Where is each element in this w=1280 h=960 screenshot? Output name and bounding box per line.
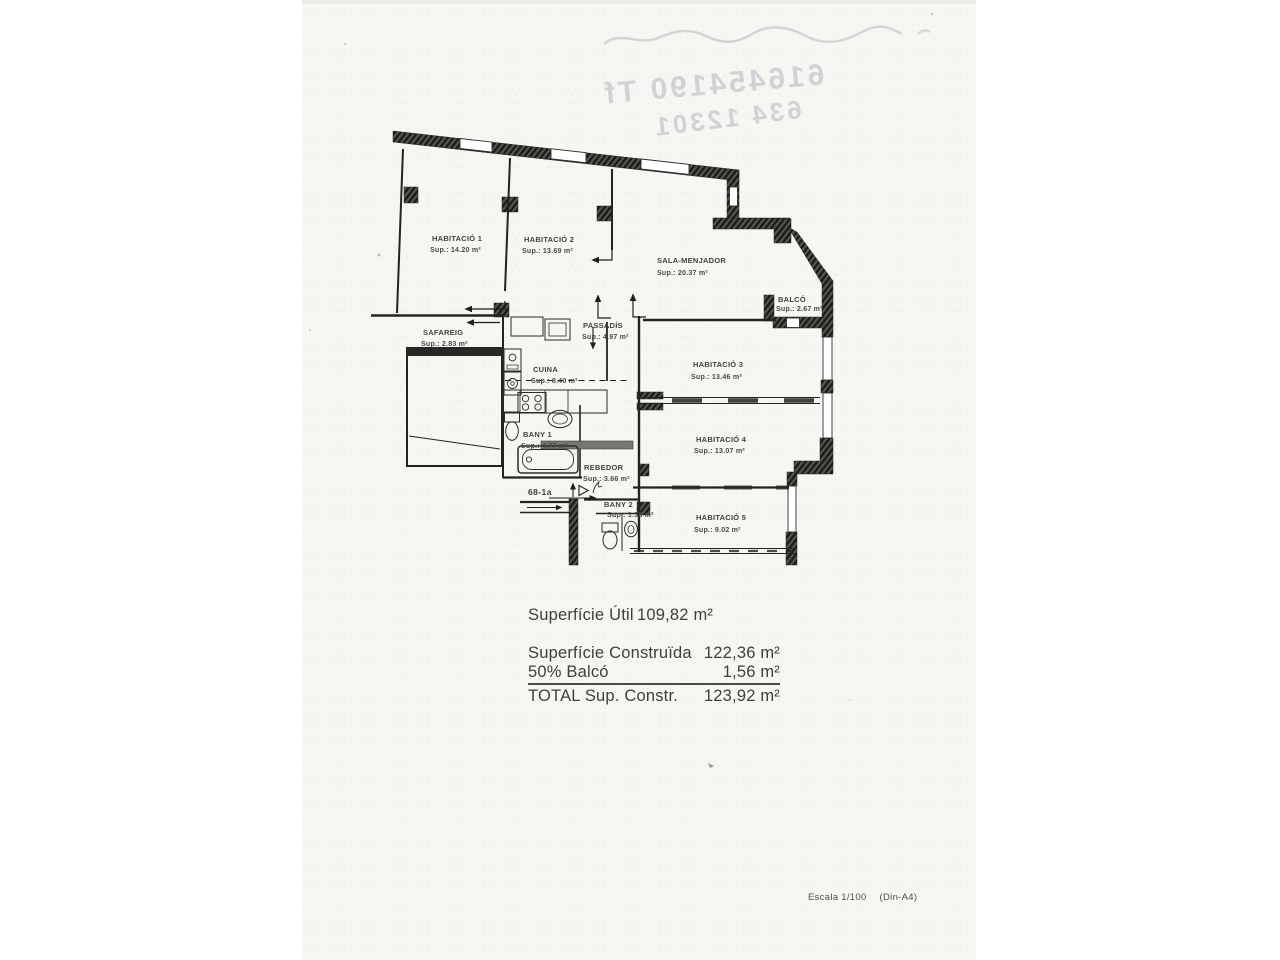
svg-text:HABITACIÓ 4: HABITACIÓ 4 [696, 435, 747, 444]
svg-text:HABITACIÓ 2: HABITACIÓ 2 [524, 235, 574, 244]
patio-diagonal [409, 436, 500, 449]
svg-text:REBEDOR: REBEDOR [584, 463, 624, 472]
summary-value: 123,92 m² [704, 687, 780, 705]
summary-value: 1,56 m² [723, 663, 780, 681]
wall-pillar [404, 187, 418, 203]
entrance-door-label: 68-1a [528, 482, 602, 497]
summary-row-construida: Superfície Construïda 122,36 m² [528, 644, 780, 662]
window [730, 187, 738, 206]
entrance-number: 68-1a [528, 487, 552, 497]
summary-label: Superfície Construïda [528, 644, 692, 662]
svg-text:CUINA: CUINA [533, 365, 558, 374]
svg-text:BANY 1: BANY 1 [523, 430, 552, 439]
bidet-icon [625, 521, 638, 537]
scanned-document-viewer: 616454190 Tf 634 12301 [0, 0, 1280, 960]
window [641, 159, 689, 174]
door-swing-arrow [593, 243, 612, 260]
summary-row-balco: 50% Balcó 1,56 m² [528, 663, 780, 681]
room-label-balco: BALCÓ Sup.: 2.67 m² [776, 295, 823, 313]
door-swing-arrow [598, 296, 611, 318]
bathtub-icon [518, 446, 578, 473]
svg-text:Sup.: 13.46 m²: Sup.: 13.46 m² [691, 373, 742, 381]
handwriting-squiggle [918, 30, 930, 34]
summary-row-total: TOTAL Sup. Constr. 123,92 m² [528, 683, 780, 705]
patio-outline [407, 348, 502, 466]
pen-mark [593, 482, 602, 493]
door-swing-arrow [633, 295, 646, 317]
window [823, 337, 832, 380]
svg-text:Sup.: 13.07 m²: Sup.: 13.07 m² [694, 447, 745, 455]
svg-text:Sup.: 9.02 m²: Sup.: 9.02 m² [694, 526, 741, 534]
area-summary: Superfície Útil 109,82 m² Superfície Con… [528, 606, 780, 705]
step-wall [794, 461, 833, 474]
svg-text:Sup.: 4.77 m²: Sup.: 4.77 m² [521, 442, 568, 450]
room-label-habitacio-4: HABITACIÓ 4 Sup.: 13.07 m² [694, 435, 747, 455]
summary-row-util: Superfície Útil 109,82 m² [528, 606, 780, 624]
door-jamb-block [639, 464, 649, 476]
room-label-habitacio-5: HABITACIÓ 5 Sup.: 9.02 m² [694, 513, 746, 534]
svg-text:SAFAREIG: SAFAREIG [423, 328, 463, 337]
floor-plan-drawing: 616454190 Tf 634 12301 [0, 0, 1280, 960]
right-wall-lower [820, 438, 833, 464]
svg-text:HABITACIÓ 5: HABITACIÓ 5 [696, 513, 746, 522]
svg-text:HABITACIÓ 3: HABITACIÓ 3 [693, 360, 743, 369]
right-wall-hab5-upper [787, 472, 797, 486]
scale-value: Escala 1/100 [808, 892, 867, 903]
room-labels: HABITACIÓ 1 Sup.: 14.20 m² HABITACIÓ 2 S… [421, 234, 823, 534]
right-wall-upper [822, 281, 833, 337]
wall-pillar [597, 206, 612, 221]
corner-pillar [774, 219, 791, 243]
room-label-habitacio-2: HABITACIÓ 2 Sup.: 13.69 m² [522, 235, 574, 255]
svg-text:Sup.: 4.97 m²: Sup.: 4.97 m² [582, 333, 629, 341]
svg-text:Sup.: 1.38 m²: Sup.: 1.38 m² [607, 511, 654, 519]
room-label-passadis: PASSADÍS Sup.: 4.97 m² [582, 321, 629, 341]
window [823, 393, 832, 438]
room-label-cuina: CUINA Sup.: 8.40 m² [531, 365, 578, 385]
window [788, 486, 796, 532]
svg-text:Sup.: 14.20 m²: Sup.: 14.20 m² [430, 246, 481, 254]
laundry-sink-icon [504, 349, 521, 371]
diagonal-wall [788, 227, 833, 287]
bany2-west-wall [569, 499, 578, 565]
svg-text:SALA-MENJADOR: SALA-MENJADOR [657, 256, 726, 265]
svg-text:Sup.: 8.40 m²: Sup.: 8.40 m² [531, 377, 578, 385]
summary-label: Superfície Útil [528, 606, 637, 624]
svg-text:BALCÓ: BALCÓ [778, 295, 806, 304]
door-jamb-block [637, 403, 663, 410]
door-direction-icon [579, 486, 588, 496]
svg-text:HABITACIÓ 1: HABITACIÓ 1 [432, 234, 482, 243]
hab1-hab2-wall [505, 158, 510, 291]
svg-text:BANY 2: BANY 2 [604, 500, 633, 509]
svg-text:Sup.: 2.67 m²: Sup.: 2.67 m² [776, 305, 823, 313]
hab1-west-wall [397, 149, 403, 313]
balcony-west-wall [764, 295, 774, 321]
stove-icon [518, 393, 546, 413]
svg-text:Sup.: 13.69 m²: Sup.: 13.69 m² [522, 247, 573, 255]
summary-value: 122,36 m² [704, 644, 780, 662]
scale-note: Escala 1/100 (Din-A4) [808, 892, 917, 903]
room-label-sala-menjador: SALA-MENJADOR Sup.: 20.37 m² [657, 256, 726, 277]
wall-pillar [502, 197, 518, 212]
handwriting-bleedthrough: 616454190 Tf 634 12301 [601, 27, 930, 142]
room-label-rebedor: REBEDOR Sup.: 3.66 m² [583, 463, 630, 483]
handwriting-squiggle [604, 27, 902, 44]
right-wall-mid [821, 380, 833, 393]
washer-icon [504, 372, 521, 395]
balcony-door [787, 318, 800, 328]
summary-label: 50% Balcó [528, 663, 609, 681]
paper-format: (Din-A4) [880, 892, 918, 903]
svg-text:PASSADÍS: PASSADÍS [583, 321, 623, 330]
kitchen-cabinet [511, 317, 570, 340]
summary-value: 109,82 m² [637, 606, 713, 624]
toilet-icon [602, 523, 618, 549]
room-label-bany-1: BANY 1 Sup.: 4.77 m² [521, 430, 568, 450]
patio-top-band [407, 348, 502, 356]
toilet-icon [505, 412, 520, 440]
room-label-habitacio-1: HABITACIÓ 1 Sup.: 14.20 m² [430, 234, 482, 254]
room-label-habitacio-3: HABITACIÓ 3 Sup.: 13.46 m² [691, 360, 743, 381]
svg-text:Sup.: 2.83 m²: Sup.: 2.83 m² [421, 340, 468, 348]
svg-text:Sup.: 3.66 m²: Sup.: 3.66 m² [583, 475, 630, 483]
summary-label: TOTAL Sup. Constr. [528, 687, 678, 705]
kitchen-counter [503, 390, 607, 413]
room-label-safareig: SAFAREIG Sup.: 2.83 m² [421, 328, 468, 348]
svg-text:Sup.: 20.37 m²: Sup.: 20.37 m² [657, 269, 708, 277]
